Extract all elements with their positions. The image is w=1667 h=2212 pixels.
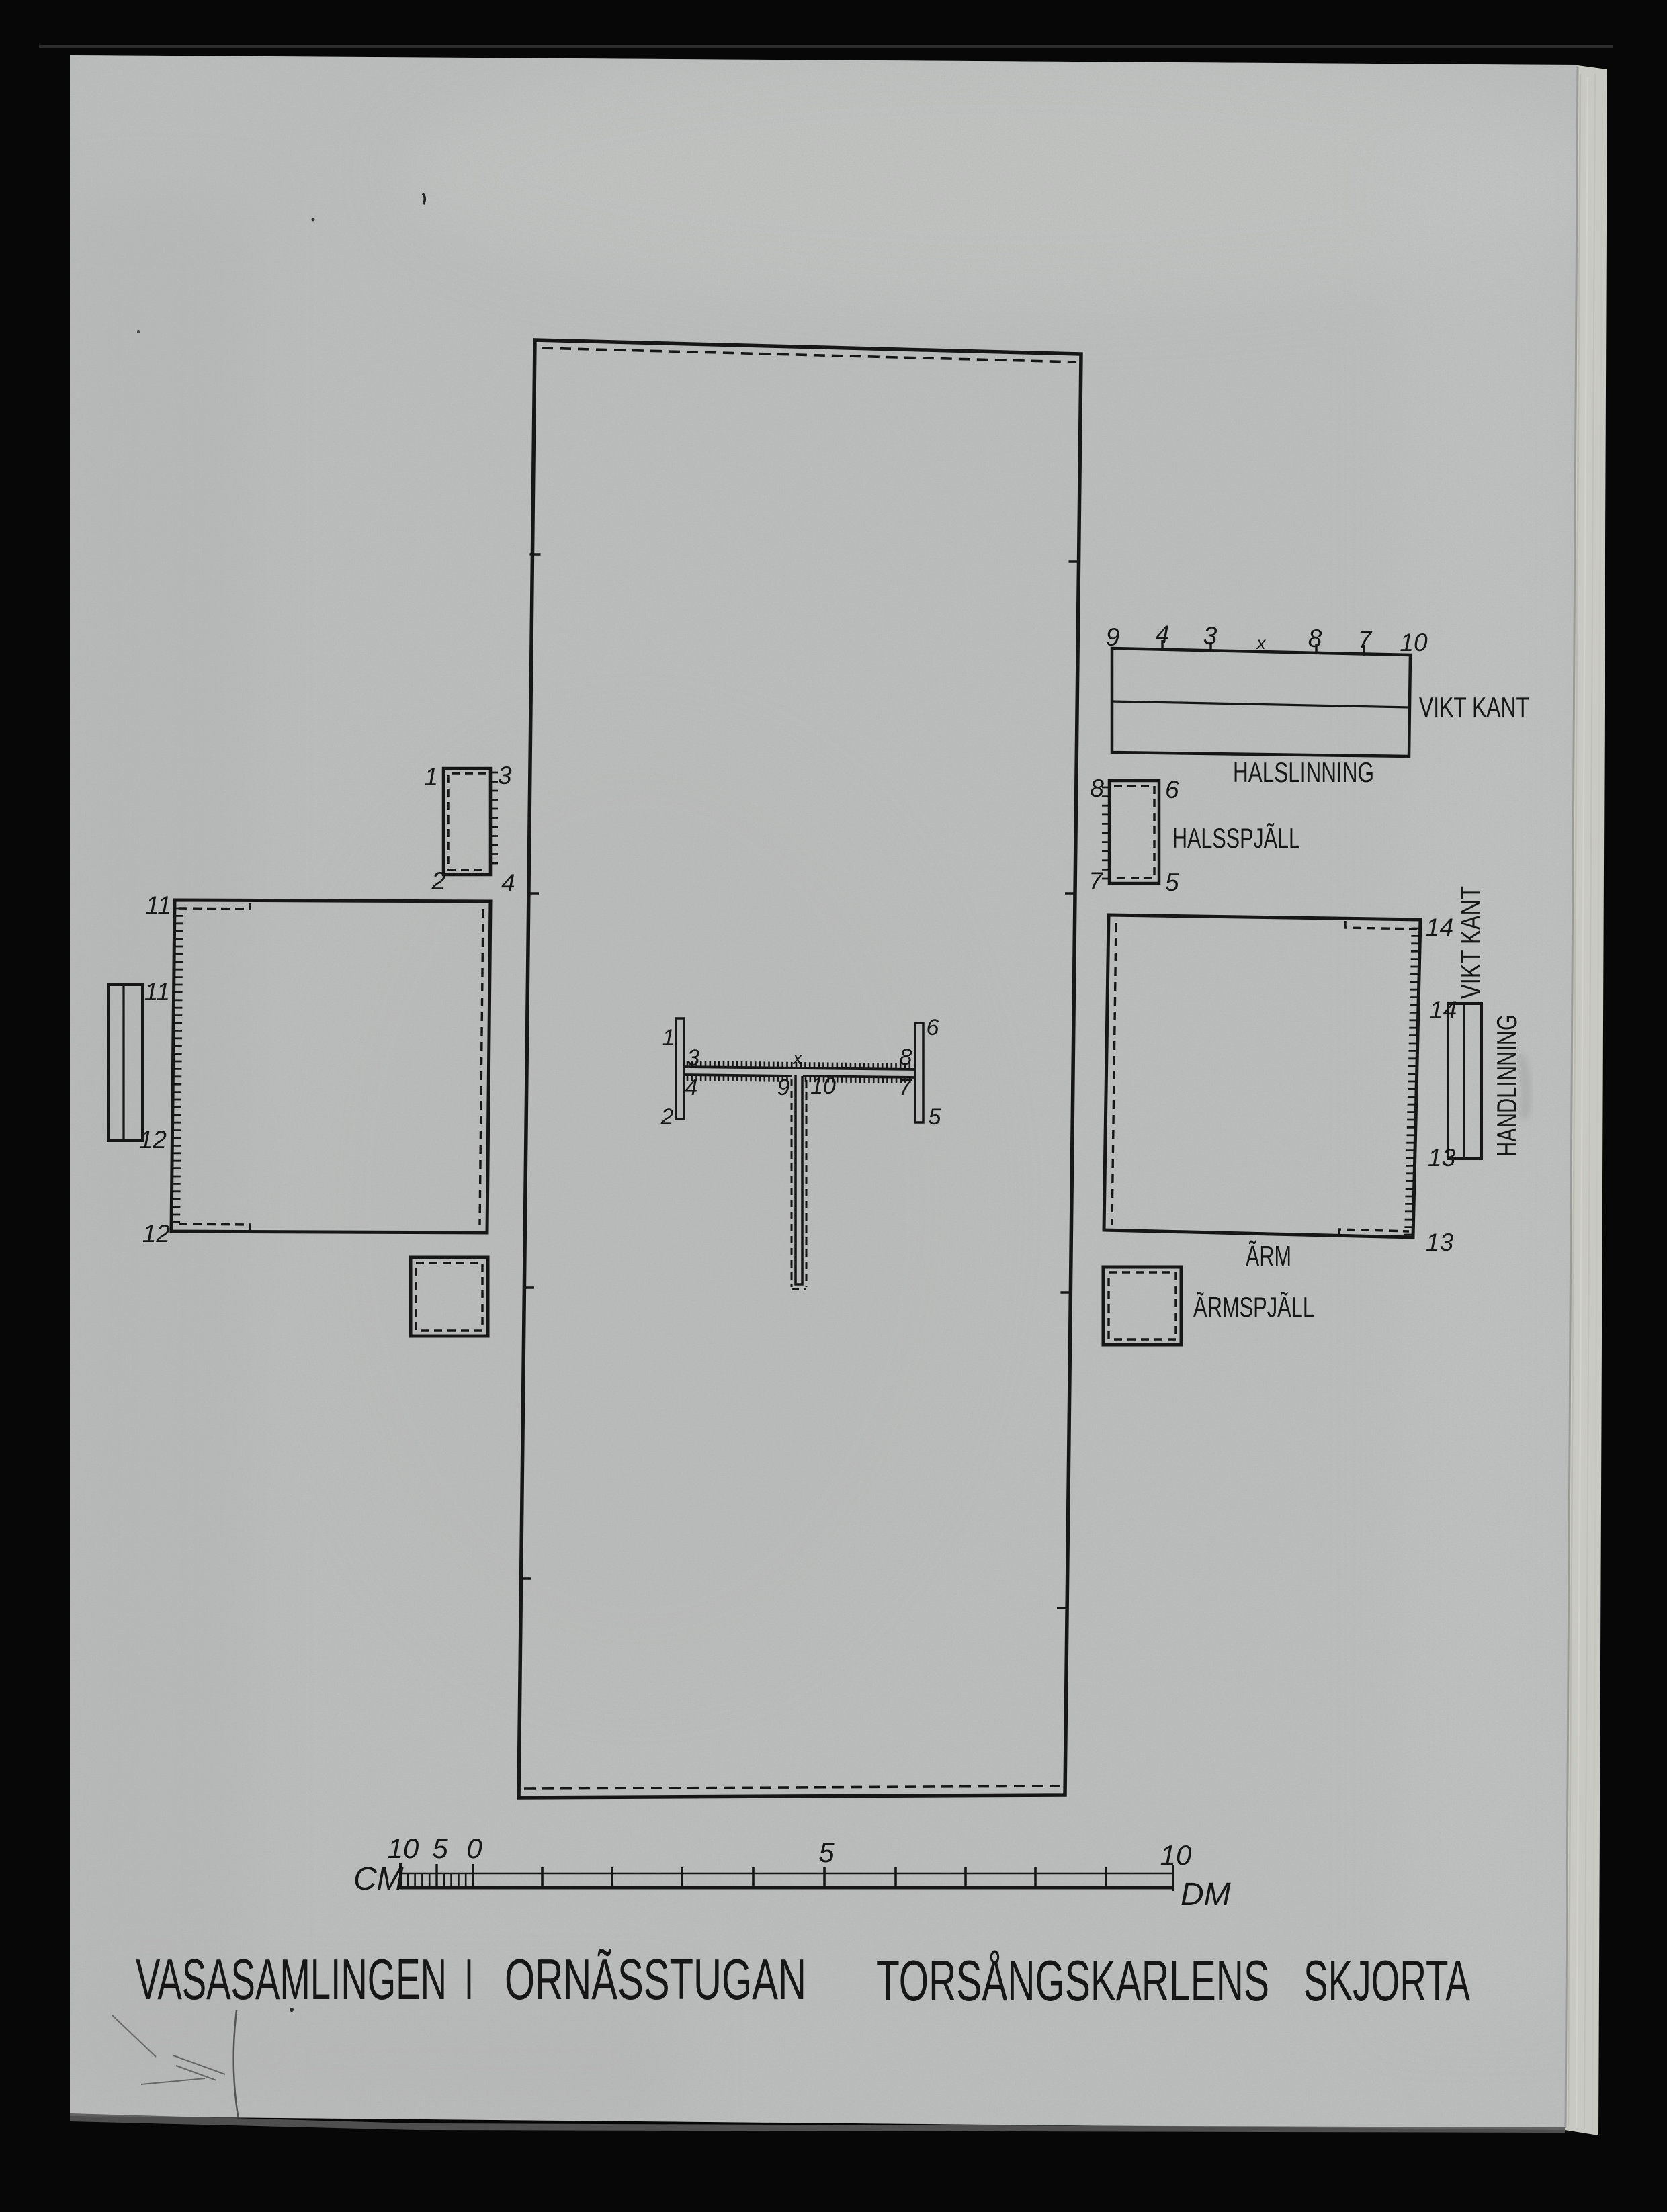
svg-text:5: 5 [1165, 869, 1179, 896]
svg-text:11: 11 [144, 978, 170, 1006]
svg-text:VIKT KANT: VIKT KANT [1455, 886, 1486, 999]
svg-text:6: 6 [1165, 776, 1179, 803]
svg-text:5: 5 [432, 1832, 448, 1864]
svg-text:9: 9 [777, 1075, 790, 1100]
svg-text:9: 9 [1106, 623, 1120, 651]
svg-text:8: 8 [1090, 775, 1104, 802]
svg-text:7: 7 [1088, 867, 1103, 895]
svg-text:4: 4 [501, 869, 515, 897]
svg-text:HALSLINNING: HALSLINNING [1233, 756, 1374, 788]
svg-text:8: 8 [900, 1045, 912, 1070]
svg-text:HALSSPJÃLL: HALSSPJÃLL [1172, 822, 1300, 854]
svg-text:4: 4 [685, 1075, 698, 1100]
svg-text:x: x [793, 1049, 803, 1068]
svg-text:4: 4 [1156, 621, 1170, 648]
svg-text:7: 7 [899, 1075, 912, 1100]
svg-text:x: x [1256, 633, 1267, 653]
svg-text:0: 0 [466, 1832, 482, 1864]
svg-text:5: 5 [818, 1837, 835, 1868]
svg-text:10: 10 [388, 1832, 419, 1864]
svg-text:I: I [464, 1948, 474, 2012]
svg-text:2: 2 [660, 1104, 674, 1130]
svg-text:ÃRM: ÃRM [1246, 1239, 1291, 1273]
svg-text:VIKT KANT: VIKT KANT [1419, 691, 1529, 723]
svg-text:ÃRMSPJÃLL: ÃRMSPJÃLL [1193, 1291, 1314, 1323]
svg-text:3: 3 [498, 762, 512, 789]
svg-text:1: 1 [662, 1025, 675, 1051]
svg-text:VASASAMLINGEN: VASASAMLINGEN [136, 1948, 447, 2012]
svg-text:1: 1 [424, 763, 438, 791]
svg-text:TORSÅNGSKARLENS: TORSÅNGSKARLENS [876, 1949, 1269, 2013]
svg-text:8: 8 [1308, 625, 1322, 652]
svg-text:HANDLINNING: HANDLINNING [1491, 1014, 1523, 1157]
svg-text:3: 3 [687, 1045, 700, 1071]
svg-text:10: 10 [810, 1073, 836, 1099]
svg-text:CM: CM [353, 1861, 404, 1897]
svg-text:12: 12 [142, 1220, 171, 1247]
svg-text:5: 5 [929, 1104, 941, 1130]
svg-text:7: 7 [1358, 626, 1373, 654]
svg-text:11: 11 [146, 891, 171, 919]
svg-text:14: 14 [1429, 996, 1457, 1024]
svg-text:10: 10 [1160, 1839, 1192, 1871]
svg-text:6: 6 [927, 1015, 939, 1041]
svg-text:DM: DM [1181, 1877, 1231, 1912]
svg-text:10: 10 [1400, 629, 1428, 656]
svg-text:SKJORTA: SKJORTA [1303, 1949, 1470, 2013]
svg-text:13: 13 [1426, 1229, 1454, 1256]
svg-text:3: 3 [1203, 622, 1217, 650]
svg-text:2: 2 [431, 867, 445, 895]
svg-text:14: 14 [1426, 914, 1453, 941]
svg-text:ORNÃSSTUGAN: ORNÃSSTUGAN [505, 1948, 806, 2012]
